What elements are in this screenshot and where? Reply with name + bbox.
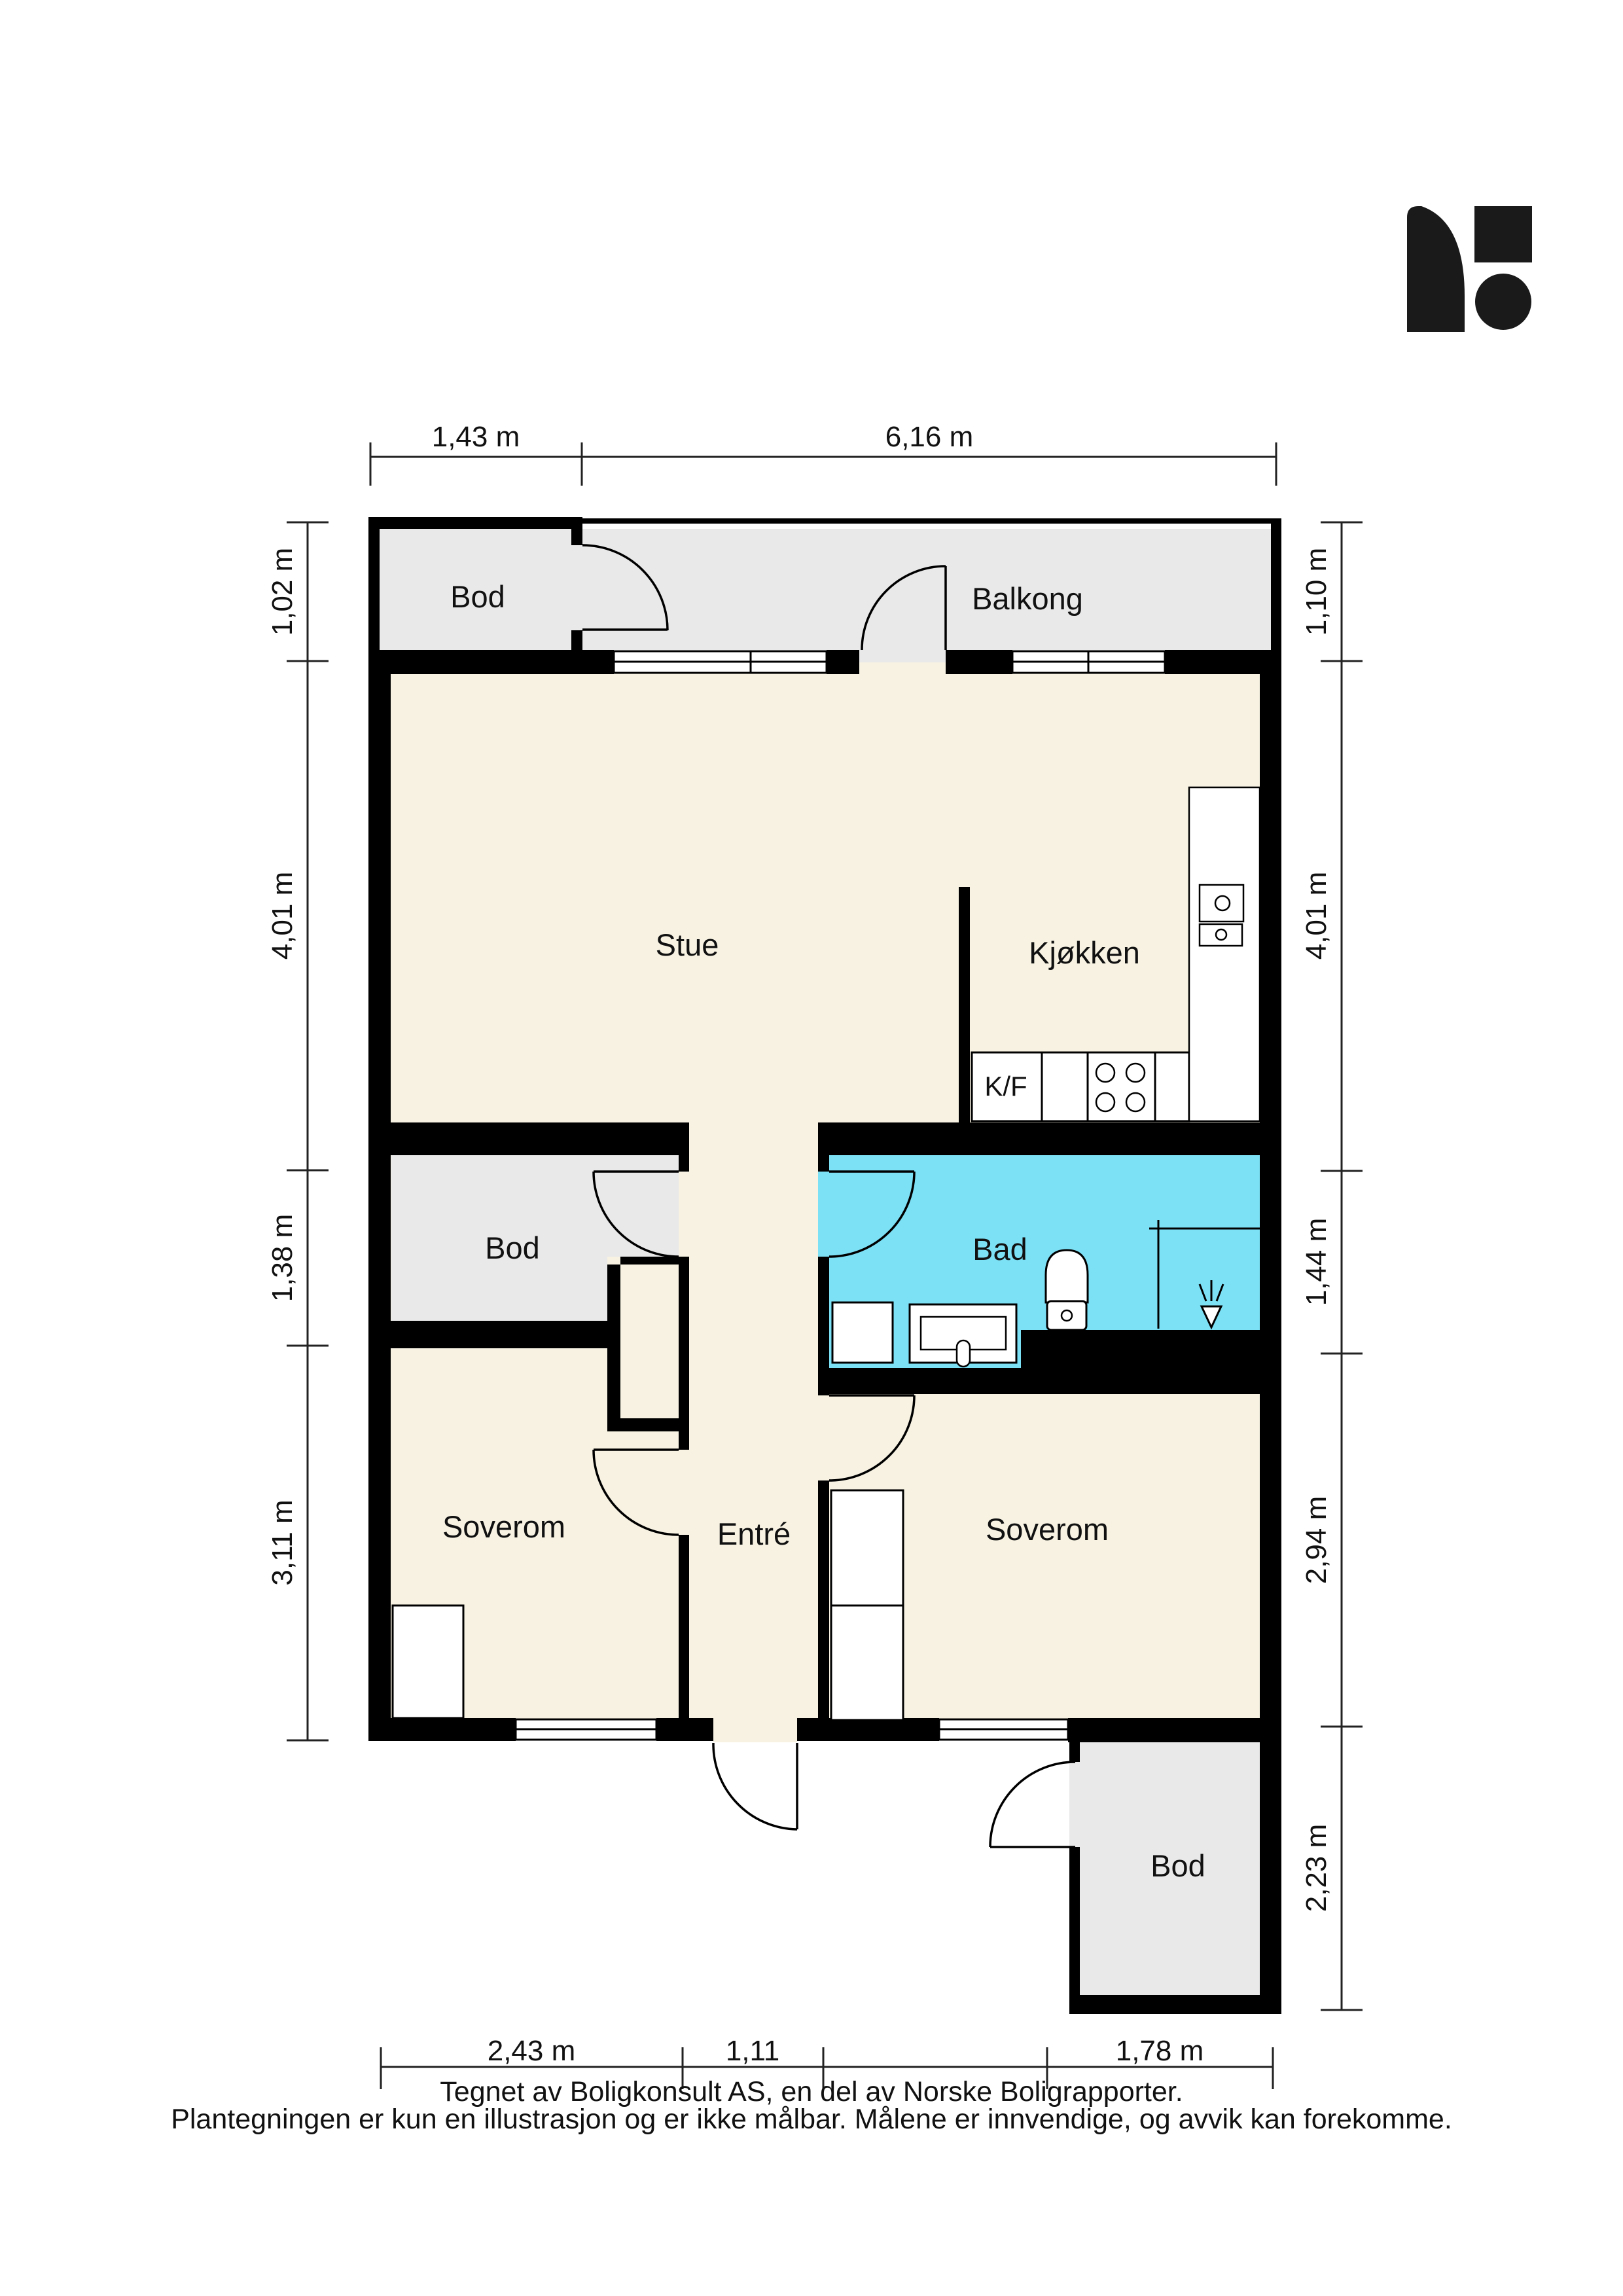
wall-segment bbox=[818, 1122, 1260, 1155]
dimension-label: 4,01 m bbox=[1300, 872, 1332, 960]
wall-segment bbox=[368, 1321, 607, 1348]
dimension-top: 1,43 m 6,16 m bbox=[370, 421, 1276, 486]
wall-segment bbox=[679, 1155, 689, 1172]
dimension-label: 2,43 m bbox=[488, 2035, 576, 2067]
cooktop-burner-icon bbox=[1096, 1064, 1115, 1082]
dimension-right: 1,10 m 4,01 m 1,44 m 2,94 m 2,23 m bbox=[1300, 522, 1363, 2010]
room-label-bod-bottom: Bod bbox=[1150, 1848, 1205, 1883]
wall-segment bbox=[1069, 1742, 1080, 1762]
wall-segment bbox=[571, 529, 582, 545]
sink-drain-icon bbox=[1216, 929, 1226, 940]
room-label-soverom-right: Soverom bbox=[986, 1512, 1109, 1547]
dimension-label: 2,94 m bbox=[1300, 1496, 1332, 1585]
bod-bottom-door-threshold bbox=[1069, 1762, 1080, 1847]
wall-segment bbox=[607, 1265, 620, 1431]
wall-segment bbox=[1069, 1847, 1080, 1995]
footer: Tegnet av Boligkonsult AS, en del av Nor… bbox=[171, 2076, 1452, 2135]
counter-cabinet bbox=[1155, 1052, 1189, 1121]
logo-pillar-shape bbox=[1407, 206, 1465, 332]
wall-left-outer bbox=[368, 663, 391, 1741]
wardrobe-icon bbox=[831, 1605, 903, 1720]
dimension-label: 6,16 m bbox=[885, 421, 974, 453]
room-label-entre: Entré bbox=[717, 1516, 791, 1551]
cooktop-burner-icon bbox=[1096, 1093, 1115, 1111]
kitchen-counter-right bbox=[1189, 787, 1260, 1121]
dimension-label: 1,44 m bbox=[1300, 1218, 1332, 1306]
boligkonsult-logo bbox=[1407, 206, 1532, 332]
toilet-icon bbox=[1046, 1250, 1088, 1302]
footer-disclaimer-text: Plantegningen er kun en illustrasjon og … bbox=[171, 2104, 1452, 2135]
wall-segment bbox=[368, 517, 582, 529]
wall-segment bbox=[1021, 1330, 1260, 1368]
dimension-label: 1,02 m bbox=[266, 548, 298, 636]
wall-right-outer bbox=[1260, 674, 1281, 2014]
balcony-and-storage-floor bbox=[380, 529, 1271, 650]
footer-credit-text: Tegnet av Boligkonsult AS, en del av Nor… bbox=[440, 2076, 1183, 2108]
counter-cabinet bbox=[1042, 1052, 1088, 1121]
wall-segment bbox=[818, 1155, 829, 1172]
door-swing-arc bbox=[990, 1762, 1075, 1847]
wall-segment bbox=[679, 1257, 689, 1450]
dimension-label: 3,11 m bbox=[266, 1499, 298, 1585]
logo-square-shape bbox=[1474, 206, 1532, 262]
kitchen-partition-wall bbox=[959, 887, 970, 1126]
room-label-soverom-left: Soverom bbox=[442, 1509, 565, 1544]
room-label-kf: K/F bbox=[984, 1071, 1027, 1102]
door-swing-arc bbox=[713, 1743, 797, 1829]
floorplan-page: Bod Balkong Stue Kjøkken K/F Bod Bad Sov… bbox=[0, 0, 1623, 2296]
balcony-door-threshold bbox=[859, 650, 946, 662]
wall-segment bbox=[946, 650, 1012, 674]
cooktop-burner-icon bbox=[1126, 1064, 1145, 1082]
entry-door-threshold bbox=[713, 1720, 797, 1742]
vanity-faucet bbox=[957, 1340, 970, 1367]
wall-segment bbox=[368, 517, 380, 663]
sink-drain-icon bbox=[1215, 896, 1230, 910]
wall-segment bbox=[797, 1718, 939, 1741]
wall-segment bbox=[368, 1122, 689, 1155]
dimension-label: 1,43 m bbox=[432, 421, 520, 453]
washer-icon bbox=[832, 1302, 893, 1363]
dimension-label: 1,38 m bbox=[266, 1214, 298, 1302]
bod-mid-floor-lower bbox=[391, 1257, 607, 1321]
room-label-balkong: Balkong bbox=[972, 581, 1083, 616]
wall-segment bbox=[368, 1718, 516, 1741]
wardrobe-icon bbox=[393, 1605, 463, 1718]
dimension-label: 1,10 m bbox=[1300, 548, 1332, 636]
wall-segment bbox=[368, 650, 614, 674]
room-label-bod-top: Bod bbox=[450, 579, 505, 614]
dimension-label: 4,01 m bbox=[266, 872, 298, 960]
dimension-left: 1,02 m 4,01 m 1,38 m 3,11 m bbox=[266, 522, 329, 1740]
dimension-label: 2,23 m bbox=[1300, 1824, 1332, 1912]
wall-segment bbox=[1069, 1995, 1281, 2014]
cooktop-cabinet bbox=[1088, 1052, 1155, 1121]
balcony-railing bbox=[571, 518, 1281, 524]
floorplan-drawing: Bod Balkong Stue Kjøkken K/F Bod Bad Sov… bbox=[0, 0, 1623, 2296]
dimension-label: 1,78 m bbox=[1116, 2035, 1204, 2067]
wall-segment bbox=[656, 1718, 713, 1741]
wall-segment bbox=[1165, 650, 1281, 674]
room-label-stue: Stue bbox=[656, 927, 719, 962]
logo-circle-shape bbox=[1475, 274, 1531, 330]
room-label-kjokken: Kjøkken bbox=[1029, 935, 1140, 970]
toilet-flush-icon bbox=[1061, 1310, 1072, 1321]
cooktop-burner-icon bbox=[1126, 1093, 1145, 1111]
wall-segment bbox=[818, 1368, 1260, 1394]
bathroom-door-threshold bbox=[818, 1172, 829, 1257]
dimension-label: 1,11 bbox=[726, 2035, 779, 2067]
balcony-door-threshold-inner bbox=[859, 662, 946, 673]
wall-segment bbox=[679, 1535, 689, 1721]
wall-segment bbox=[1068, 1718, 1281, 1742]
room-label-bad: Bad bbox=[972, 1232, 1027, 1266]
wall-segment bbox=[818, 1480, 829, 1721]
room-label-bod-mid: Bod bbox=[485, 1230, 540, 1265]
wardrobe-icon bbox=[831, 1490, 903, 1605]
wall-segment bbox=[827, 650, 859, 674]
wall-segment bbox=[607, 1418, 689, 1431]
